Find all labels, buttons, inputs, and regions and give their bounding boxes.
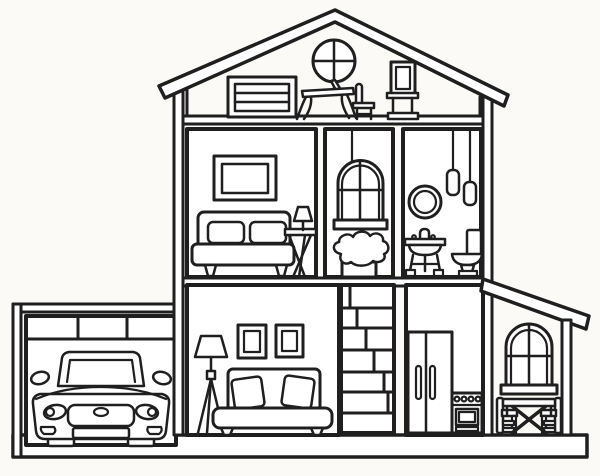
bed-leg [205, 265, 216, 276]
vanity-foot [434, 270, 443, 276]
sink-basin [409, 245, 441, 255]
pendant-shade [447, 170, 459, 195]
window-nook [325, 129, 393, 277]
lamp-collar [207, 371, 215, 379]
window-sill [334, 220, 387, 229]
toilet-base [459, 271, 477, 276]
car-headlight-bulb-right [148, 408, 156, 416]
pendant-shade [464, 182, 476, 205]
desk-chair [353, 84, 374, 119]
arched-window [334, 161, 387, 230]
wall-art-frame [276, 325, 303, 357]
fridge-handle [416, 366, 421, 399]
chair-crossbar [544, 421, 555, 425]
stove [452, 393, 482, 433]
left-wall [174, 88, 183, 435]
garage [13, 304, 183, 457]
vanity-foot [406, 270, 415, 276]
sofa [213, 369, 332, 435]
sofa-cushion [231, 376, 265, 410]
kitchen [406, 285, 483, 435]
garage-left-wall [13, 304, 21, 457]
nightstand-top [285, 229, 316, 235]
refrigerator [408, 332, 452, 433]
oven-drawer [456, 427, 478, 431]
porch-window [501, 324, 557, 394]
dining-porch [481, 279, 589, 435]
car-license-plate [73, 428, 129, 438]
sofa-seat [213, 408, 332, 428]
bathroom [403, 129, 482, 277]
mirror-stand-bar [387, 93, 418, 98]
sofa-cushion [281, 375, 315, 409]
dollhouse-drawing [0, 0, 600, 472]
car-bumper-vent-left [41, 427, 55, 434]
car-logo [94, 408, 108, 416]
car-windshield-frame [58, 352, 144, 386]
standing-mirror [387, 62, 418, 119]
pillow [250, 222, 286, 243]
bed [192, 212, 294, 276]
car-bumper-vent-right [147, 427, 161, 434]
window-sill [501, 385, 557, 394]
living-room [187, 285, 339, 435]
bedroom [187, 129, 316, 277]
toilet-bowl [452, 254, 482, 265]
bed-leg [276, 265, 287, 276]
garage-roof-slab [13, 304, 183, 312]
bed-mattress [192, 244, 294, 265]
dresser [228, 77, 296, 117]
staircase-column [341, 285, 394, 433]
toilet-tank [467, 230, 481, 255]
dollhouse-illustration [0, 0, 600, 472]
mirror-base [388, 113, 418, 119]
desk [297, 80, 356, 119]
lamp-shade [294, 207, 312, 221]
car-headlight-bulb-left [46, 408, 54, 416]
porch-right-wall [562, 320, 571, 435]
chair-crossbar [503, 421, 514, 425]
sofa-leg [221, 428, 233, 435]
porch-roof [481, 279, 589, 329]
pillow [208, 222, 244, 243]
lamp-shade [195, 336, 227, 357]
fridge-handle [430, 366, 435, 399]
round-mirror [409, 186, 441, 218]
sofa-leg [311, 428, 323, 435]
shrub-foliage [334, 232, 388, 266]
table-top [503, 399, 555, 406]
